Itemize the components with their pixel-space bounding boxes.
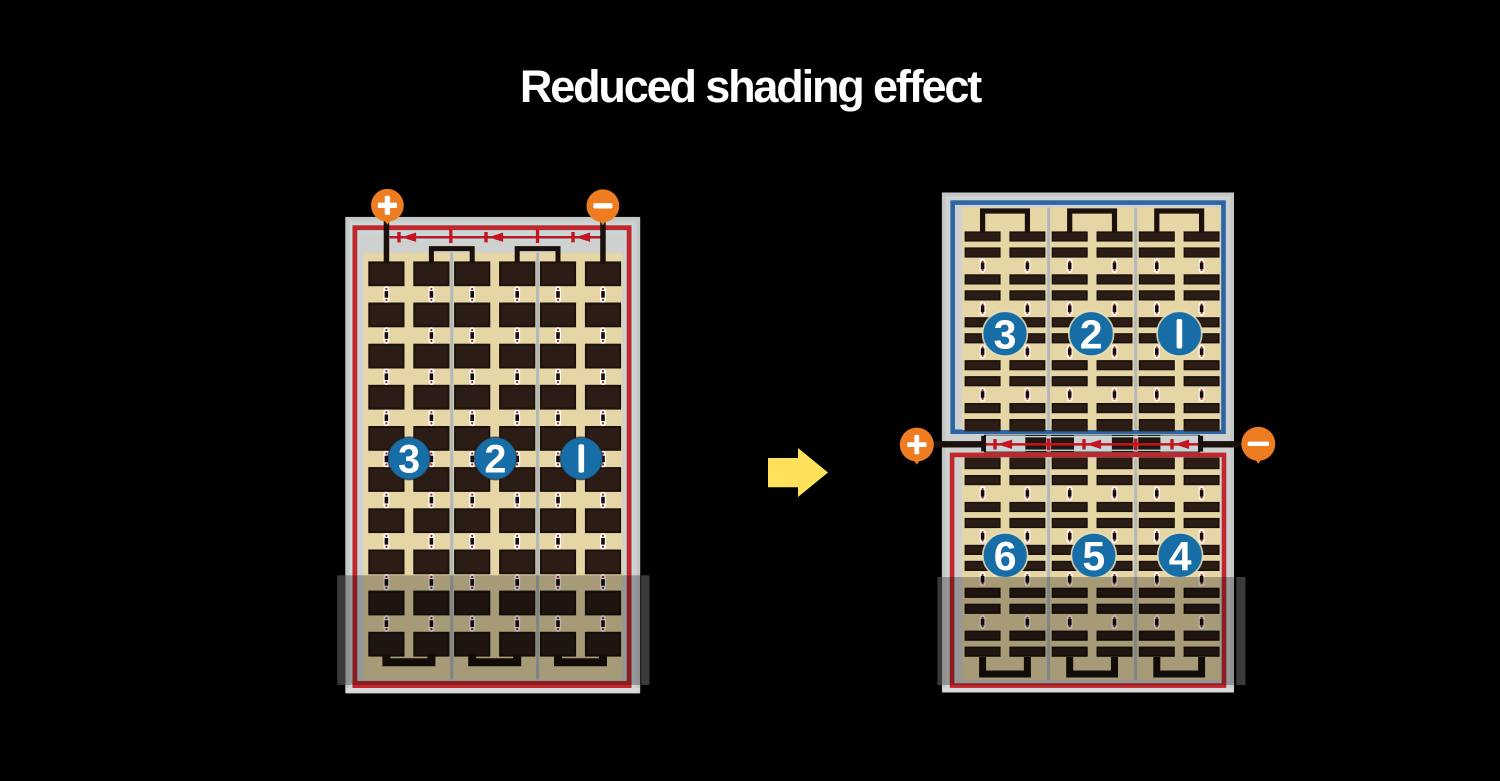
- svg-text:2: 2: [1080, 311, 1103, 357]
- svg-text:4: 4: [1169, 533, 1192, 579]
- svg-text:3: 3: [994, 311, 1017, 357]
- svg-text:2: 2: [484, 438, 506, 482]
- svg-text:5: 5: [1082, 533, 1105, 579]
- svg-text:6: 6: [994, 533, 1017, 579]
- svg-text:3: 3: [398, 438, 420, 482]
